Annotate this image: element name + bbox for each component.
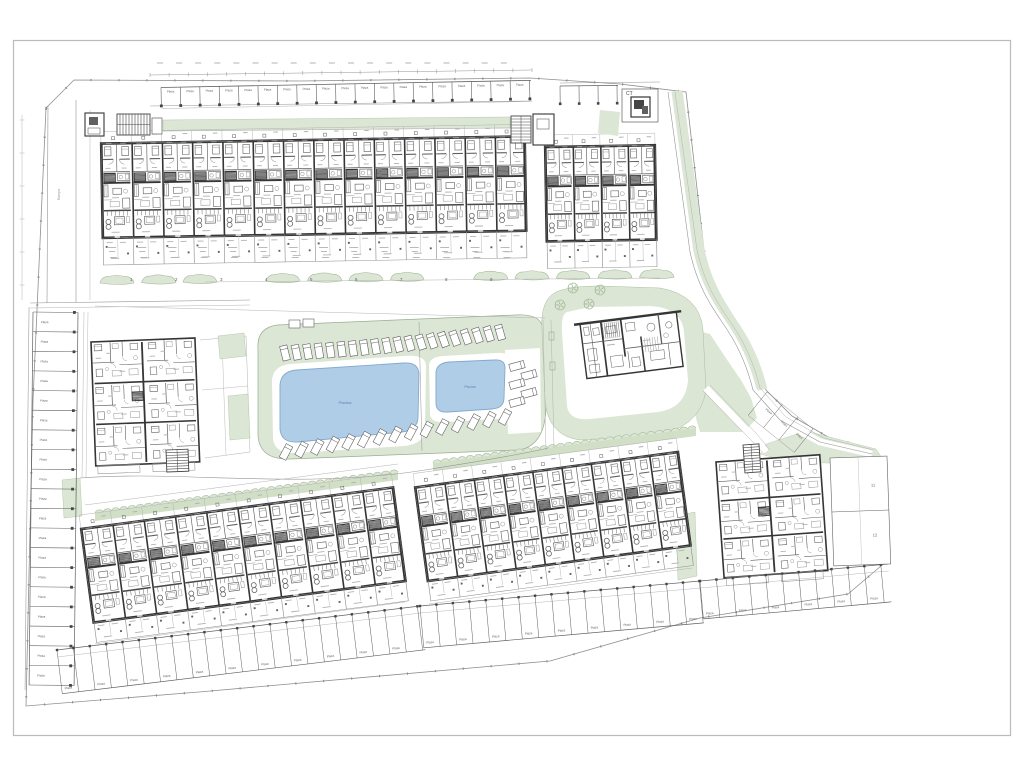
svg-text:Plaza: Plaza <box>458 84 466 88</box>
svg-text:Plaza: Plaza <box>837 599 845 604</box>
svg-text:Plaza: Plaza <box>41 340 49 344</box>
svg-text:CT: CT <box>626 91 633 97</box>
svg-text:Plaza: Plaza <box>739 608 747 613</box>
svg-text:Plaza: Plaza <box>206 89 214 93</box>
svg-text:Plaza: Plaza <box>186 89 194 93</box>
svg-text:Plaza: Plaza <box>303 87 311 91</box>
svg-text:Plaza: Plaza <box>426 640 434 645</box>
svg-text:Plaza: Plaza <box>400 85 408 89</box>
svg-text:Plaza: Plaza <box>38 634 46 638</box>
svg-text:Plaza: Plaza <box>40 359 48 363</box>
svg-text:Plaza: Plaza <box>283 87 291 91</box>
svg-text:Plaza: Plaza <box>39 536 47 540</box>
svg-text:Plaza: Plaza <box>361 86 369 90</box>
svg-text:Piscina: Piscina <box>339 400 353 405</box>
svg-text:Plaza: Plaza <box>804 602 812 607</box>
svg-text:Plaza: Plaza <box>40 438 48 442</box>
svg-text:Plaza: Plaza <box>492 634 500 639</box>
svg-text:Plaza: Plaza <box>656 619 664 624</box>
svg-text:Plaza: Plaza <box>706 611 714 616</box>
svg-text:Plaza: Plaza <box>38 595 46 599</box>
svg-text:Plaza: Plaza <box>477 83 485 87</box>
svg-text:Plaza: Plaza <box>40 418 48 422</box>
svg-text:Plaza: Plaza <box>39 497 47 501</box>
svg-text:Plaza: Plaza <box>244 88 252 92</box>
svg-text:Plaza: Plaza <box>37 673 45 677</box>
svg-text:Rampa: Rampa <box>57 189 61 200</box>
svg-text:Plaza: Plaza <box>590 625 598 630</box>
svg-text:Plaza: Plaza <box>37 654 45 658</box>
svg-text:Plaza: Plaza <box>525 631 533 636</box>
svg-text:Plaza: Plaza <box>689 616 697 621</box>
svg-text:Plaza: Plaza <box>558 628 566 633</box>
svg-text:Plaza: Plaza <box>225 88 233 92</box>
svg-text:Plaza: Plaza <box>516 83 524 87</box>
svg-text:Plaza: Plaza <box>322 86 330 90</box>
svg-text:Piscina: Piscina <box>464 385 475 389</box>
svg-text:Plaza: Plaza <box>772 605 780 610</box>
svg-text:Plaza: Plaza <box>39 516 47 520</box>
svg-text:Plaza: Plaza <box>40 379 48 383</box>
svg-text:Plaza: Plaza <box>380 85 388 89</box>
svg-text:Plaza: Plaza <box>167 89 175 93</box>
svg-text:Plaza: Plaza <box>438 84 446 88</box>
svg-text:Plaza: Plaza <box>341 86 349 90</box>
svg-text:Plaza: Plaza <box>497 83 505 87</box>
svg-text:Plaza: Plaza <box>41 320 49 324</box>
svg-text:Plaza: Plaza <box>870 596 878 601</box>
svg-text:Plaza: Plaza <box>623 622 631 627</box>
svg-text:Plaza: Plaza <box>40 399 48 403</box>
svg-text:Plaza: Plaza <box>38 615 46 619</box>
svg-text:Plaza: Plaza <box>459 637 467 642</box>
svg-text:Plaza: Plaza <box>39 477 47 481</box>
svg-text:Plaza: Plaza <box>264 88 272 92</box>
svg-text:Plaza: Plaza <box>419 85 427 89</box>
svg-text:Plaza: Plaza <box>38 575 46 579</box>
svg-text:Plaza: Plaza <box>38 556 46 560</box>
svg-text:Plaza: Plaza <box>39 457 47 461</box>
